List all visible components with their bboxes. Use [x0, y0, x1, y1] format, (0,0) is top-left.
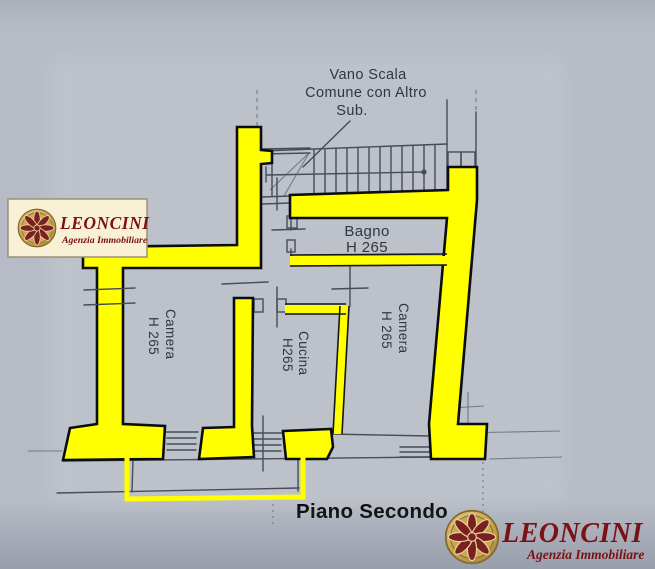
- rosette-icon: [446, 511, 499, 564]
- floor-plan-canvas: Vano Scala Comune con Altro Sub. Bagno H…: [0, 0, 655, 569]
- logo-top-left-name: LEONCINI: [59, 213, 150, 233]
- logo-top-left-tagline: Agenzia Immobiliare: [61, 235, 148, 246]
- rosette-icon: [18, 209, 56, 247]
- logo-top-left: LEONCINI Agenzia Immobiliare: [8, 199, 150, 257]
- floor-plan-screenshot: Vano Scala Comune con Altro Sub. Bagno H…: [0, 0, 655, 569]
- scan-vignette: [0, 0, 655, 569]
- logo-bottom-right-name: LEONCINI: [501, 518, 644, 549]
- logo-bottom-right: LEONCINI Agenzia Immobiliare: [446, 511, 645, 564]
- logo-bottom-right-tagline: Agenzia Immobiliare: [526, 547, 644, 562]
